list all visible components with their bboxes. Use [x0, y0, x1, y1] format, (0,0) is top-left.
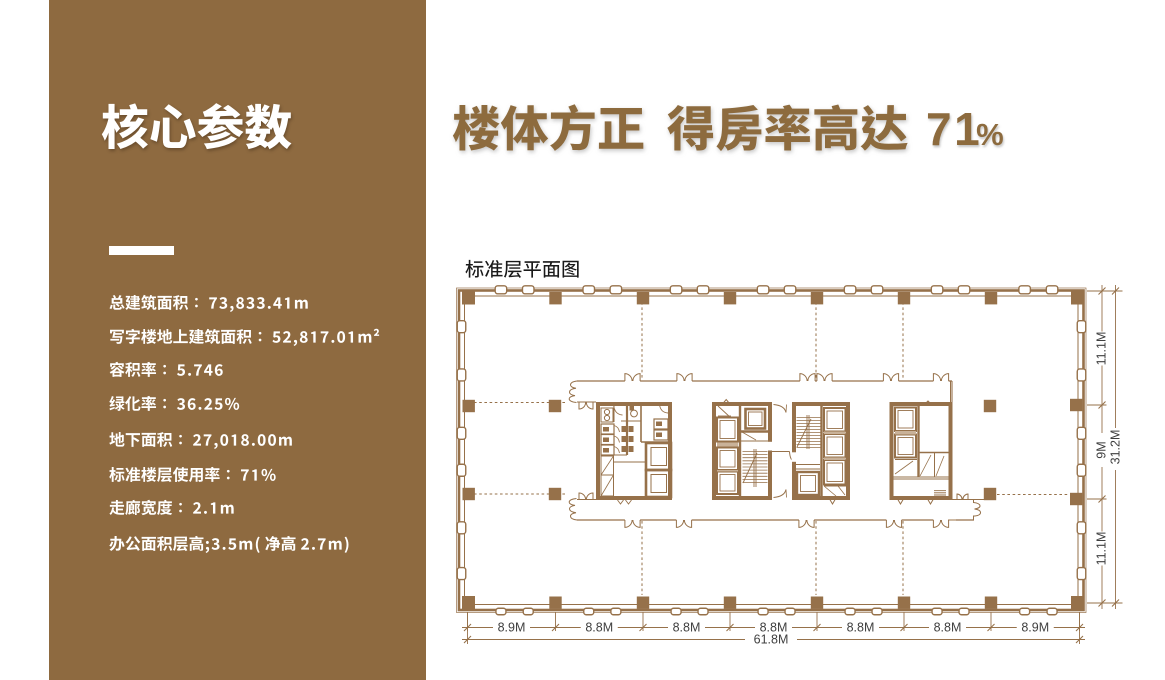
svg-text:11.1M: 11.1M — [1094, 532, 1108, 566]
svg-text:8.8M: 8.8M — [847, 621, 875, 635]
svg-text:61.8M: 61.8M — [754, 633, 789, 647]
svg-text:8.9M: 8.9M — [1021, 621, 1049, 635]
svg-text:8.8M: 8.8M — [673, 621, 701, 635]
svg-text:8.9M: 8.9M — [498, 621, 526, 635]
svg-text:8.8M: 8.8M — [585, 621, 613, 635]
svg-text:8.8M: 8.8M — [934, 621, 962, 635]
svg-text:9M: 9M — [1094, 441, 1108, 458]
svg-text:31.2M: 31.2M — [1109, 430, 1123, 465]
svg-text:11.1M: 11.1M — [1094, 332, 1108, 366]
